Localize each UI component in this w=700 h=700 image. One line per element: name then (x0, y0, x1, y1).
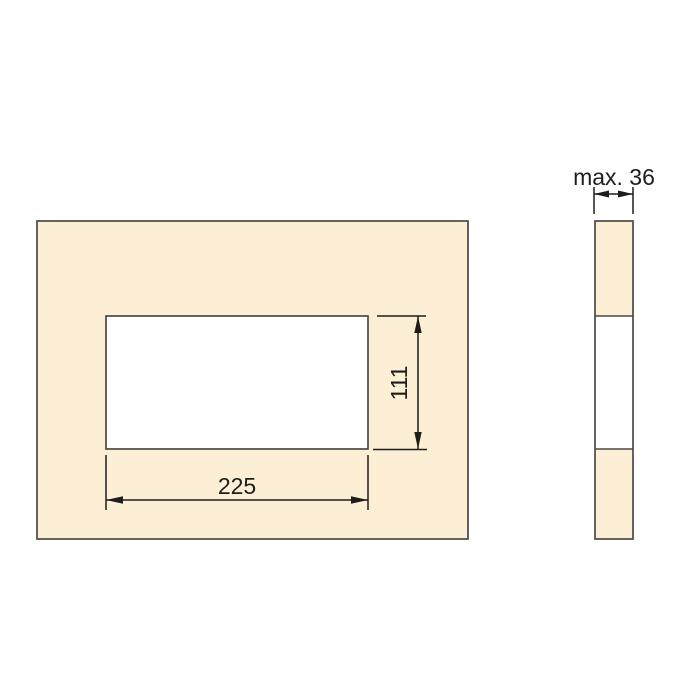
front-view-cutout (106, 316, 368, 449)
thickness-label: max. 36 (573, 164, 655, 190)
cutout-width-label: 225 (218, 473, 256, 499)
side-view-bottom-section (595, 449, 633, 539)
side-view-top-section (595, 221, 633, 316)
right-arrowhead-icon (618, 191, 633, 198)
technical-drawing-page: 225 111 (0, 0, 700, 700)
left-arrowhead-icon (594, 191, 609, 198)
thickness-dimension: max. 36 (573, 164, 655, 214)
technical-drawing-canvas: 225 111 (0, 0, 700, 700)
side-view-cutout-section (595, 316, 633, 449)
side-view (595, 221, 633, 539)
cutout-height-label: 111 (386, 366, 412, 401)
